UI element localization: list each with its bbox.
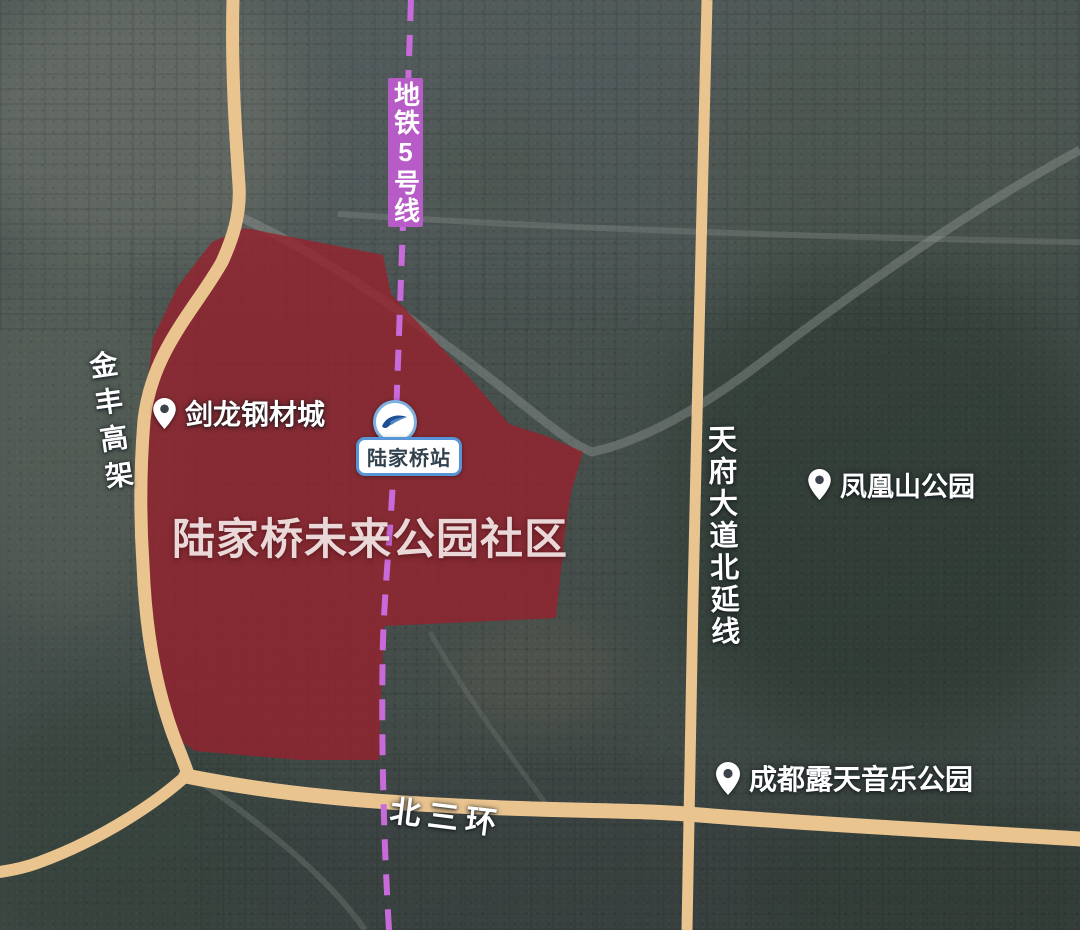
- location-pin-icon: [153, 398, 176, 429]
- road-label-tianfu: 天府大道北延线: [698, 424, 744, 649]
- metro-station-label[interactable]: 陆家桥站: [356, 437, 462, 476]
- poi-label: 剑龙钢材城: [185, 393, 325, 433]
- metro-line5-label: 地铁5号线: [388, 78, 423, 227]
- poi-phoenix-mountain-park[interactable]: 凤凰山公园: [808, 465, 975, 504]
- minor-road-bottomleft-path: [205, 785, 365, 930]
- poi-chengdu-openair-music-park[interactable]: 成都露天音乐公园: [716, 758, 973, 798]
- location-pin-icon: [808, 469, 831, 500]
- location-pin-icon: [716, 762, 740, 795]
- community-name-label: 陆家桥未来公园社区: [172, 505, 568, 567]
- road-jinfeng-south-path: [0, 774, 188, 872]
- community-boundary-polygon[interactable]: [142, 228, 583, 760]
- satellite-map: 地铁5号线 陆家桥站 陆家桥未来公园社区 剑龙钢材城 凤凰山公园 成都露天音乐公…: [0, 0, 1080, 930]
- chengdu-metro-logo-icon: [381, 413, 409, 431]
- minor-road-bottomcenter-path: [430, 632, 552, 812]
- poi-jianlong-steel-city[interactable]: 剑龙钢材城: [153, 393, 325, 433]
- poi-label: 凤凰山公园: [840, 465, 975, 504]
- poi-label: 成都露天音乐公园: [749, 758, 973, 798]
